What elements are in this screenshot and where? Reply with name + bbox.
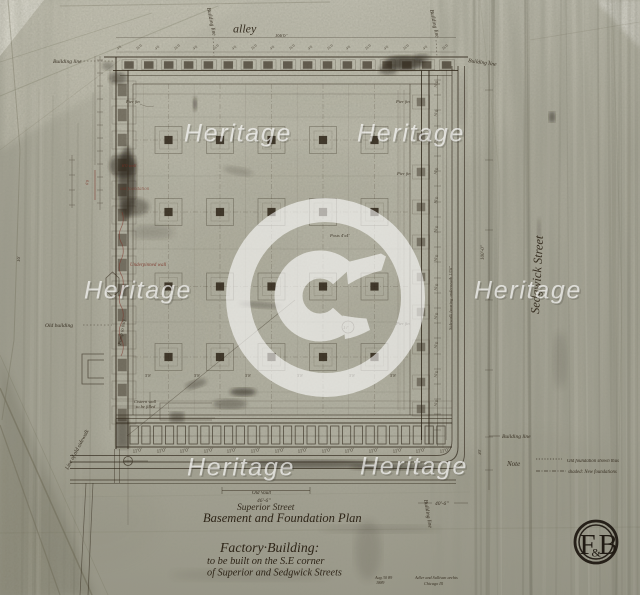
svg-text:Building line: Building line bbox=[53, 59, 82, 65]
svg-text:Old building: Old building bbox=[45, 323, 73, 329]
svg-text:to be built on the S.E corner: to be built on the S.E corner bbox=[207, 556, 325, 567]
svg-text:166'6": 166'6" bbox=[275, 34, 289, 39]
svg-text:1889: 1889 bbox=[376, 580, 385, 585]
svg-text:5'8: 5'8 bbox=[390, 373, 396, 378]
svg-text:of Superior and Sedgwick Stree: of Superior and Sedgwick Streets bbox=[207, 568, 342, 579]
svg-text:Heritage: Heritage bbox=[360, 453, 468, 481]
svg-text:5'8: 5'8 bbox=[245, 373, 251, 378]
svg-text:40'-6": 40'-6" bbox=[435, 500, 449, 507]
svg-text:Old foundation shown thus: Old foundation shown thus bbox=[567, 459, 619, 464]
svg-text:Chicago Ill: Chicago Ill bbox=[424, 581, 444, 586]
svg-text:B: B bbox=[599, 529, 618, 561]
svg-text:16': 16' bbox=[17, 255, 22, 262]
svg-text:old foundation: old foundation bbox=[120, 187, 150, 192]
svg-text:6'0 wall: 6'0 wall bbox=[122, 163, 137, 168]
svg-text:Old Vault: Old Vault bbox=[252, 491, 272, 496]
svg-text:Heritage: Heritage bbox=[357, 120, 465, 148]
svg-text:Heritage: Heritage bbox=[84, 277, 192, 305]
svg-text:Pier ftn: Pier ftn bbox=[125, 99, 140, 104]
svg-text:to be filled: to be filled bbox=[136, 404, 156, 409]
svg-text:Posts 4'x4': Posts 4'x4' bbox=[329, 233, 350, 238]
svg-text:6'0: 6'0 bbox=[84, 180, 90, 186]
svg-text:5'8: 5'8 bbox=[194, 373, 200, 378]
svg-text:Basement and Foundation Plan: Basement and Foundation Plan bbox=[203, 511, 362, 525]
svg-text:Heritage: Heritage bbox=[474, 277, 582, 305]
svg-text:Underpinned wall: Underpinned wall bbox=[130, 263, 167, 268]
svg-text:alley: alley bbox=[233, 22, 257, 36]
svg-text:Sidewalk bearing underneath 13: Sidewalk bearing underneath 13'6" bbox=[448, 266, 453, 330]
svg-text:Heritage: Heritage bbox=[184, 120, 292, 148]
svg-text:shaded: New foundations: shaded: New foundations bbox=[568, 470, 617, 475]
svg-text:Adler and Sullivan archts: Adler and Sullivan archts bbox=[414, 575, 458, 580]
svg-text:Heritage: Heritage bbox=[187, 454, 295, 482]
svg-text:Pier ftn: Pier ftn bbox=[395, 99, 410, 104]
svg-text:30': 30' bbox=[478, 448, 483, 455]
svg-text:Building line: Building line bbox=[502, 434, 531, 440]
svg-text:100'-0": 100'-0" bbox=[481, 244, 486, 260]
svg-text:Note: Note bbox=[506, 460, 520, 468]
svg-text:5'8: 5'8 bbox=[145, 373, 151, 378]
svg-text:Pier ftn: Pier ftn bbox=[396, 171, 411, 176]
svg-text:Factory·Building:: Factory·Building: bbox=[219, 540, 319, 555]
